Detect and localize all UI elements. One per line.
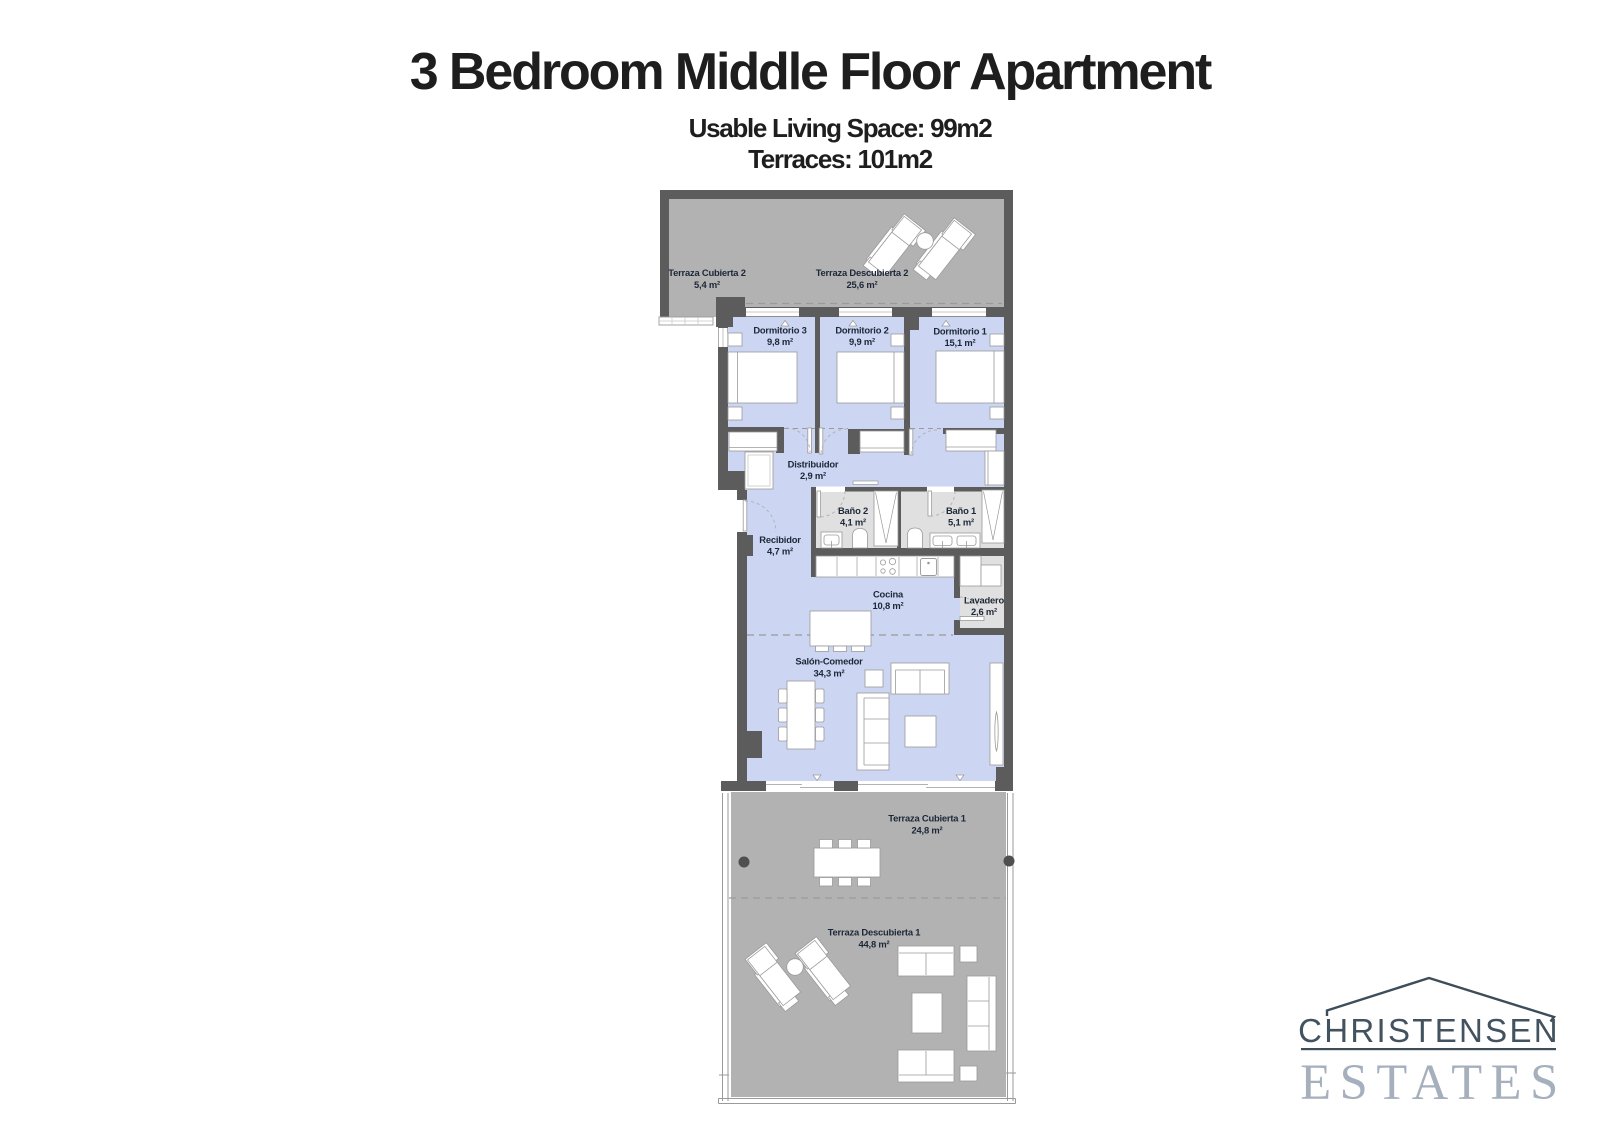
svg-text:25,6 m²: 25,6 m² xyxy=(847,279,878,290)
svg-text:2,6 m²: 2,6 m² xyxy=(971,606,997,617)
svg-text:CHRISTENSEN: CHRISTENSEN xyxy=(1298,1012,1560,1049)
svg-text:34,3 m²: 34,3 m² xyxy=(814,668,845,679)
svg-text:5,1 m²: 5,1 m² xyxy=(948,517,974,528)
svg-text:Cocina: Cocina xyxy=(873,589,904,600)
svg-text:ESTATES: ESTATES xyxy=(1300,1054,1567,1110)
svg-text:Dormitorio 3: Dormitorio 3 xyxy=(753,325,806,336)
svg-text:Distribuidor: Distribuidor xyxy=(788,459,839,470)
svg-text:Dormitorio 1: Dormitorio 1 xyxy=(933,326,986,337)
svg-text:9,8 m²: 9,8 m² xyxy=(767,336,793,347)
svg-text:10,8 m²: 10,8 m² xyxy=(873,600,904,611)
svg-text:Usable Living Space: 99m2: Usable Living Space: 99m2 xyxy=(689,113,993,143)
svg-text:Terraza Cubierta 2: Terraza Cubierta 2 xyxy=(668,267,746,278)
svg-text:5,4 m²: 5,4 m² xyxy=(694,279,720,290)
svg-text:Baño 1: Baño 1 xyxy=(946,505,976,516)
svg-text:Baño 2: Baño 2 xyxy=(838,505,868,516)
svg-text:Terraza Descubierta 1: Terraza Descubierta 1 xyxy=(828,927,921,938)
svg-text:Terraces: 101m2: Terraces: 101m2 xyxy=(748,144,933,174)
svg-text:Dormitorio 2: Dormitorio 2 xyxy=(835,325,888,336)
svg-text:9,9 m²: 9,9 m² xyxy=(849,336,875,347)
svg-text:Terraza Descubierta 2: Terraza Descubierta 2 xyxy=(816,267,909,278)
svg-text:15,1 m²: 15,1 m² xyxy=(945,337,976,348)
svg-text:3 Bedroom Middle Floor Apartme: 3 Bedroom Middle Floor Apartment xyxy=(410,43,1212,101)
svg-text:4,7 m²: 4,7 m² xyxy=(767,546,793,557)
svg-text:Recibidor: Recibidor xyxy=(759,534,801,545)
svg-text:24,8 m²: 24,8 m² xyxy=(912,825,943,836)
svg-text:44,8 m²: 44,8 m² xyxy=(859,939,890,950)
svg-text:4,1 m²: 4,1 m² xyxy=(840,517,866,528)
svg-text:2,9 m²: 2,9 m² xyxy=(800,470,826,481)
svg-text:Terraza Cubierta 1: Terraza Cubierta 1 xyxy=(888,813,966,824)
svg-text:Salón-Comedor: Salón-Comedor xyxy=(795,656,863,667)
svg-text:Lavadero: Lavadero xyxy=(964,595,1005,606)
